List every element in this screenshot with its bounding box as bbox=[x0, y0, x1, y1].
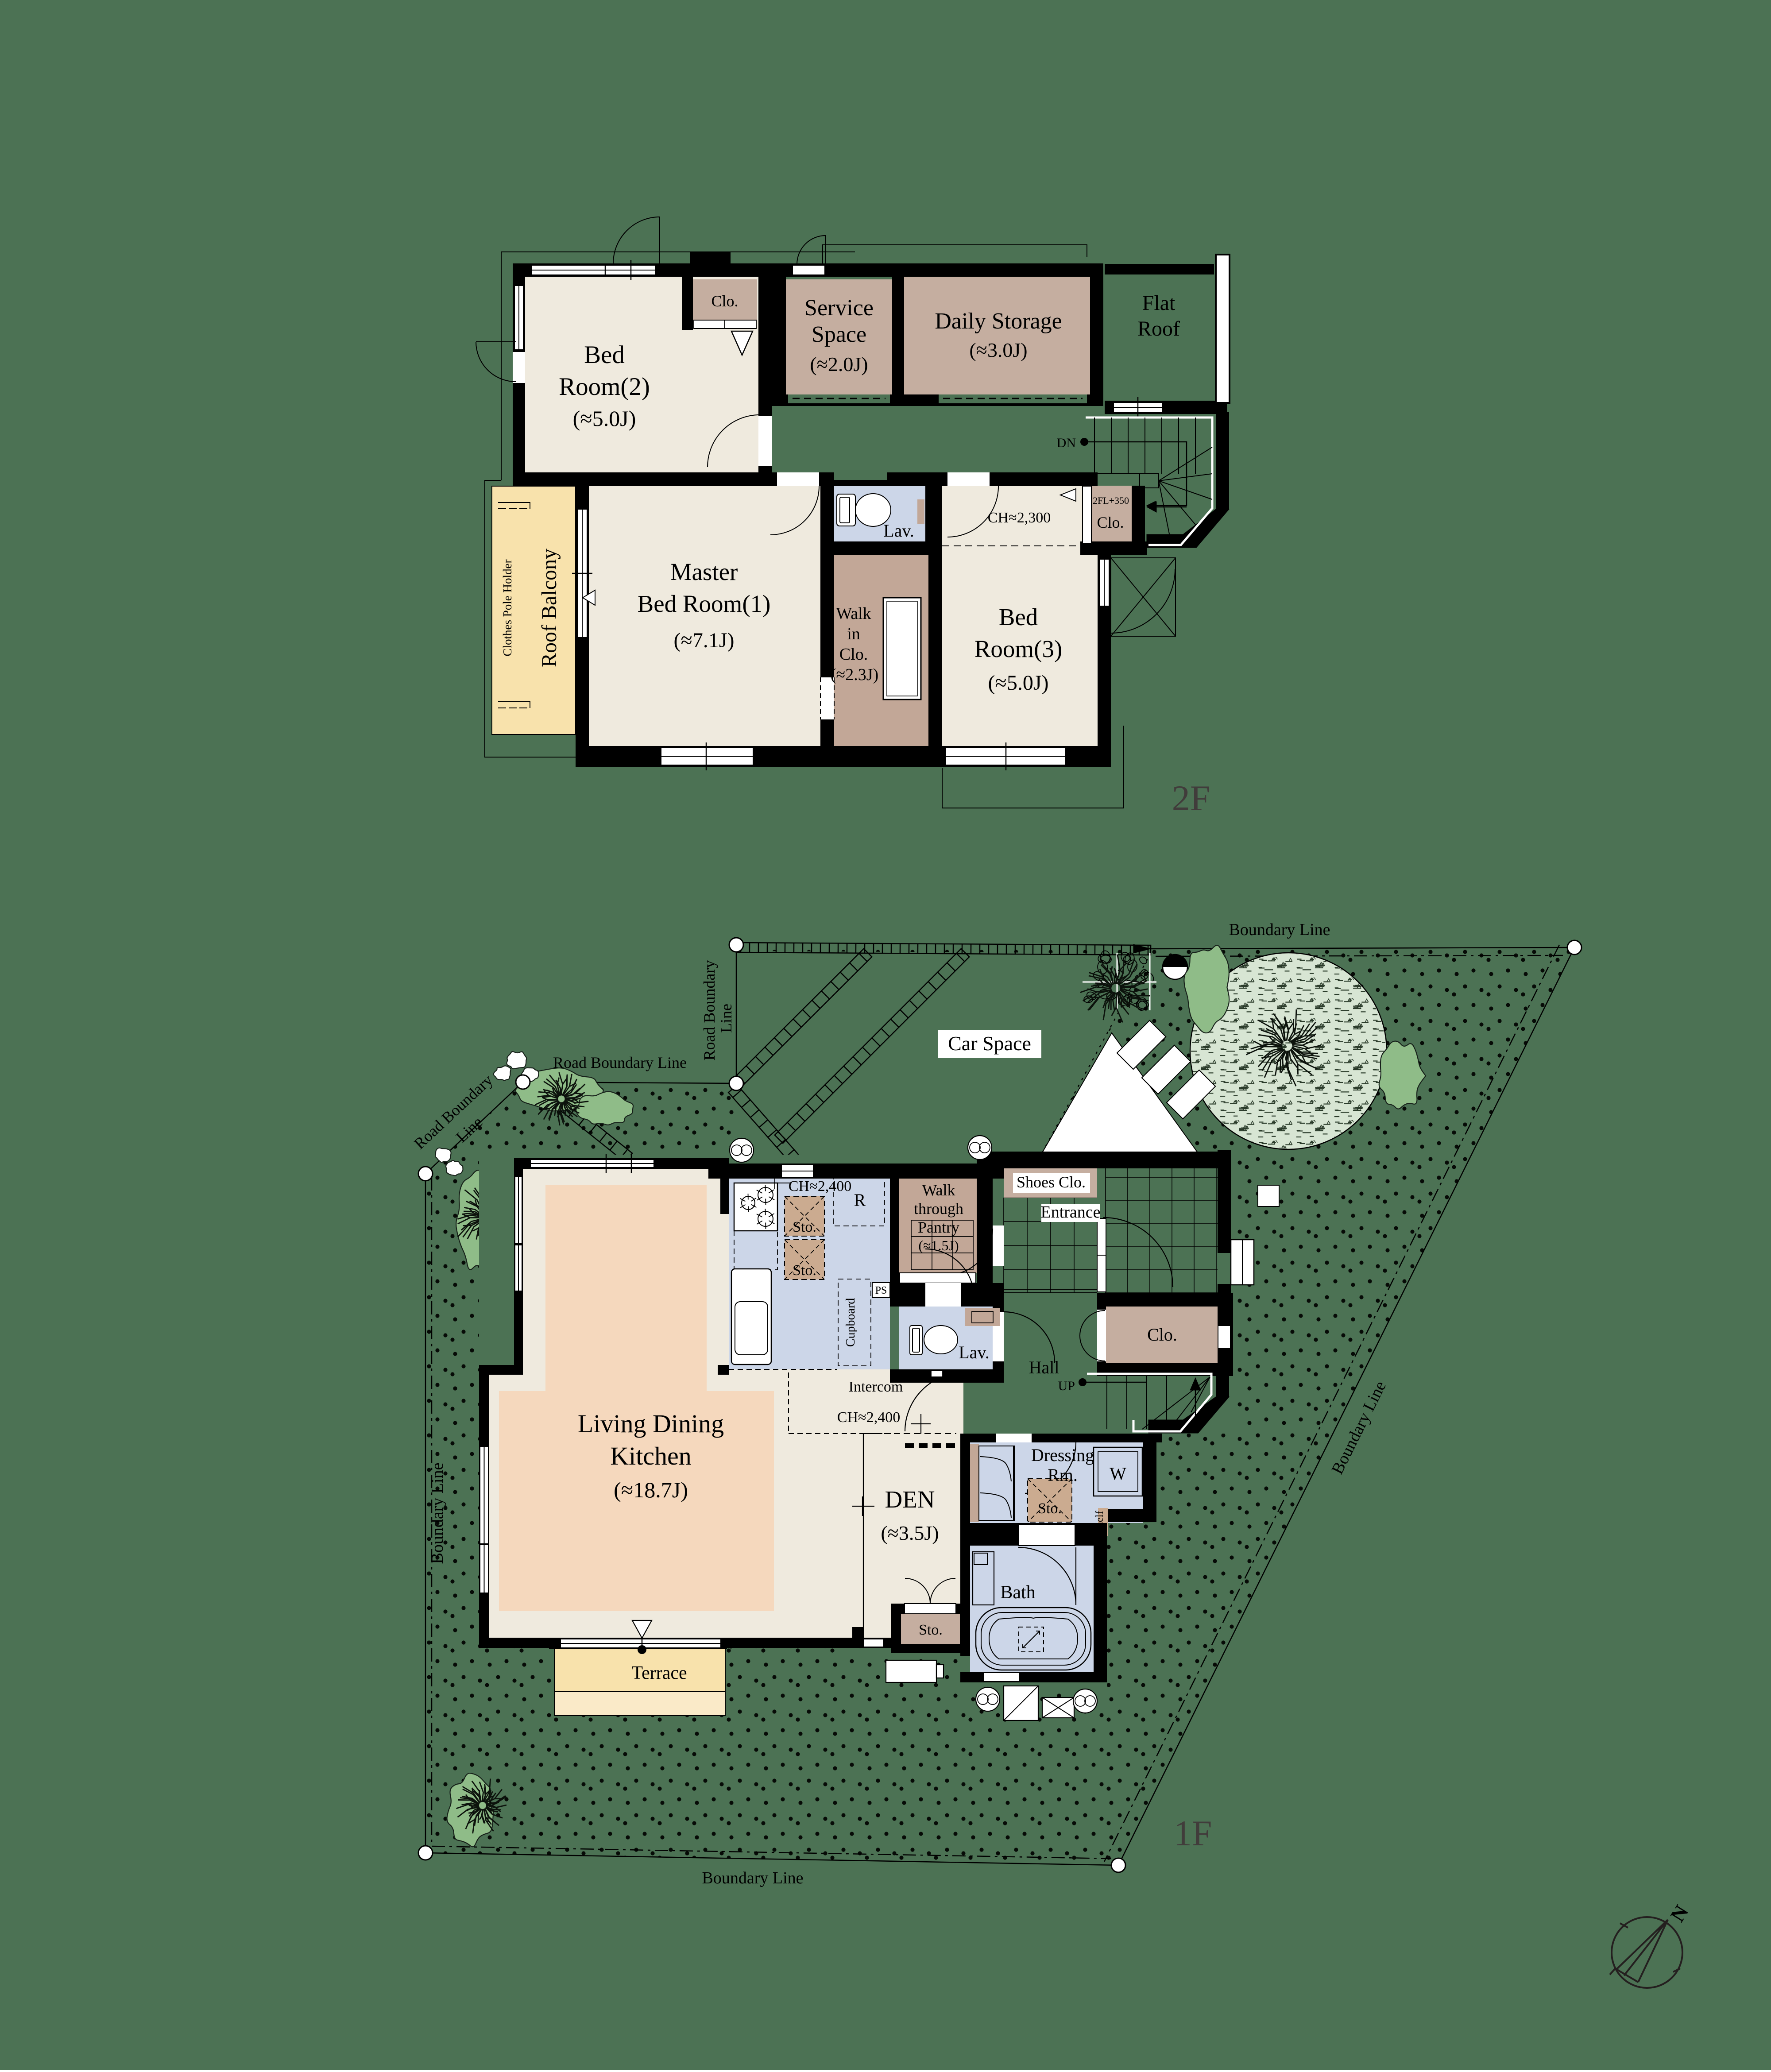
svg-text:CH≈2,300: CH≈2,300 bbox=[988, 510, 1051, 526]
svg-text:(≈1.5J): (≈1.5J) bbox=[918, 1237, 959, 1253]
svg-text:Boundary Line: Boundary Line bbox=[1229, 920, 1330, 939]
svg-text:Lav.: Lav. bbox=[959, 1342, 990, 1362]
svg-text:CH≈2,400: CH≈2,400 bbox=[837, 1409, 900, 1426]
svg-text:(≈3.5J): (≈3.5J) bbox=[881, 1522, 939, 1544]
svg-text:Bed Room(1): Bed Room(1) bbox=[638, 590, 771, 617]
svg-text:(≈2.0J): (≈2.0J) bbox=[810, 353, 868, 375]
svg-text:DN: DN bbox=[1057, 436, 1076, 450]
svg-text:Clo.: Clo. bbox=[1147, 1325, 1177, 1345]
svg-text:Room(2): Room(2) bbox=[559, 373, 650, 401]
svg-text:Road Boundary: Road Boundary bbox=[700, 960, 718, 1061]
svg-text:Rm.: Rm. bbox=[1048, 1465, 1078, 1485]
svg-text:(≈2.3J): (≈2.3J) bbox=[831, 665, 878, 684]
svg-text:in: in bbox=[847, 625, 860, 643]
svg-text:R: R bbox=[854, 1190, 866, 1210]
svg-text:Entrance: Entrance bbox=[1040, 1203, 1100, 1222]
svg-text:(≈3.0J): (≈3.0J) bbox=[969, 339, 1027, 361]
svg-text:2FL+350: 2FL+350 bbox=[1093, 495, 1129, 506]
svg-text:Terrace: Terrace bbox=[631, 1663, 687, 1683]
svg-text:through: through bbox=[914, 1200, 963, 1218]
svg-text:Sto.: Sto. bbox=[919, 1622, 943, 1638]
svg-text:UP: UP bbox=[1058, 1379, 1075, 1393]
svg-text:Walk: Walk bbox=[922, 1181, 955, 1199]
svg-text:Bed: Bed bbox=[584, 341, 625, 369]
svg-text:Car Space: Car Space bbox=[948, 1032, 1031, 1055]
svg-text:Flat: Flat bbox=[1142, 291, 1176, 315]
svg-text:(≈7.1J): (≈7.1J) bbox=[674, 629, 735, 652]
svg-text:Boundary Line: Boundary Line bbox=[702, 1869, 803, 1887]
svg-text:Clo.: Clo. bbox=[839, 645, 868, 664]
svg-text:Room(3): Room(3) bbox=[974, 635, 1063, 662]
svg-text:Roof Balcony: Roof Balcony bbox=[537, 549, 561, 667]
svg-text:Service: Service bbox=[804, 295, 874, 321]
svg-text:Line: Line bbox=[717, 1004, 735, 1033]
svg-text:Space: Space bbox=[812, 322, 866, 347]
svg-text:Hall: Hall bbox=[1029, 1357, 1060, 1377]
svg-text:Bed: Bed bbox=[999, 603, 1038, 630]
svg-text:Roof: Roof bbox=[1137, 317, 1180, 340]
svg-text:CH≈2,400: CH≈2,400 bbox=[789, 1178, 851, 1194]
svg-text:Shoes Clo.: Shoes Clo. bbox=[1017, 1173, 1086, 1191]
svg-text:Kitchen: Kitchen bbox=[610, 1442, 692, 1470]
svg-text:Living Dining: Living Dining bbox=[578, 1409, 724, 1438]
svg-text:Sto.: Sto. bbox=[793, 1262, 816, 1279]
svg-text:Intercom: Intercom bbox=[849, 1379, 903, 1395]
svg-text:Dressing: Dressing bbox=[1031, 1445, 1094, 1465]
svg-text:Daily Storage: Daily Storage bbox=[935, 309, 1062, 334]
svg-text:Sto.: Sto. bbox=[1038, 1500, 1062, 1517]
svg-text:2F: 2F bbox=[1172, 778, 1210, 818]
svg-text:Road Boundary Line: Road Boundary Line bbox=[553, 1054, 687, 1071]
svg-text:W: W bbox=[1110, 1464, 1126, 1484]
svg-text:DEN: DEN bbox=[885, 1486, 935, 1513]
svg-text:(≈5.0J): (≈5.0J) bbox=[573, 406, 636, 431]
svg-text:Clothes Pole Holder: Clothes Pole Holder bbox=[501, 560, 514, 657]
svg-text:Walk: Walk bbox=[836, 604, 871, 623]
svg-text:PS: PS bbox=[875, 1285, 887, 1296]
svg-text:Pantry: Pantry bbox=[918, 1218, 959, 1236]
svg-text:1F: 1F bbox=[1174, 1813, 1212, 1853]
svg-text:(≈5.0J): (≈5.0J) bbox=[988, 671, 1049, 695]
svg-text:Clo.: Clo. bbox=[711, 292, 738, 310]
svg-text:(≈18.7J): (≈18.7J) bbox=[614, 1477, 688, 1502]
svg-text:Boundary Line: Boundary Line bbox=[428, 1462, 447, 1564]
svg-text:Cupboard: Cupboard bbox=[844, 1298, 858, 1347]
svg-text:Lav.: Lav. bbox=[883, 521, 914, 541]
svg-text:Bath: Bath bbox=[1000, 1582, 1035, 1603]
svg-text:Master: Master bbox=[670, 558, 738, 585]
svg-text:Sto.: Sto. bbox=[793, 1219, 816, 1235]
svg-text:Clo.: Clo. bbox=[1097, 514, 1124, 531]
